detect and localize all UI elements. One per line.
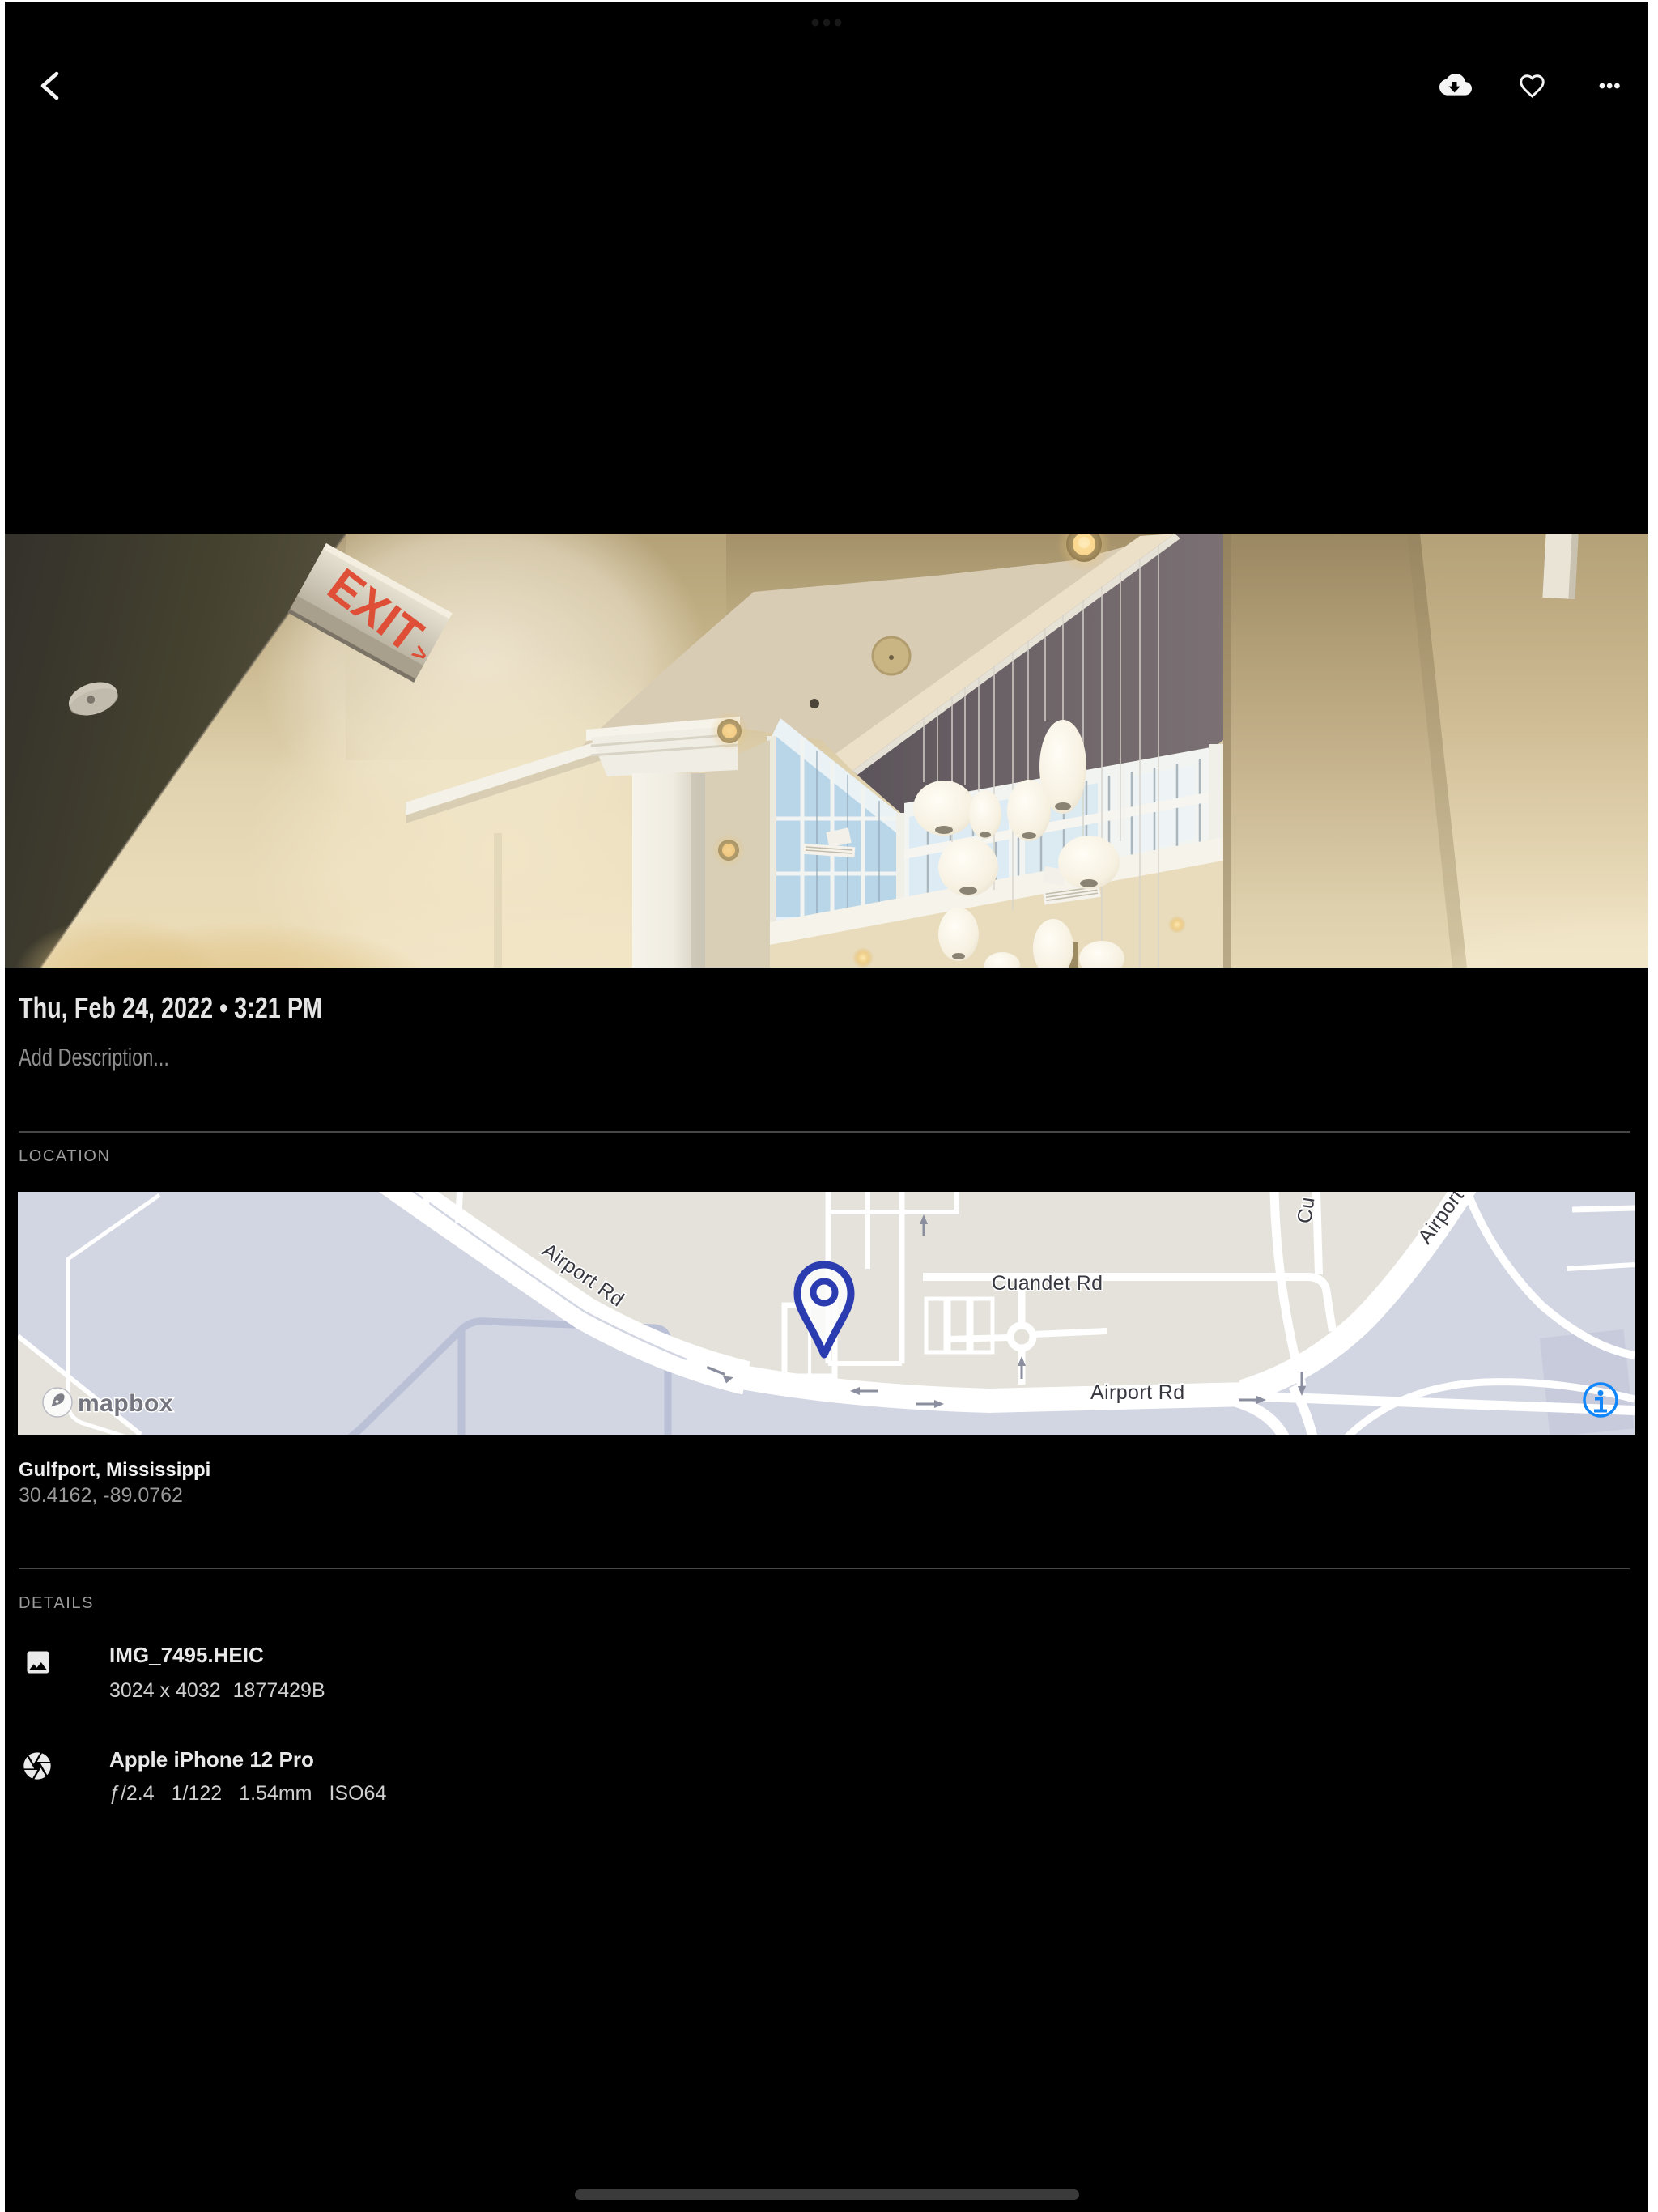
svg-text:Airport Rd: Airport Rd (1090, 1381, 1185, 1404)
svg-text:mapbox: mapbox (78, 1390, 173, 1417)
svg-text:Cu: Cu (1293, 1195, 1319, 1224)
svg-text:Cuandet Rd: Cuandet Rd (992, 1272, 1103, 1295)
